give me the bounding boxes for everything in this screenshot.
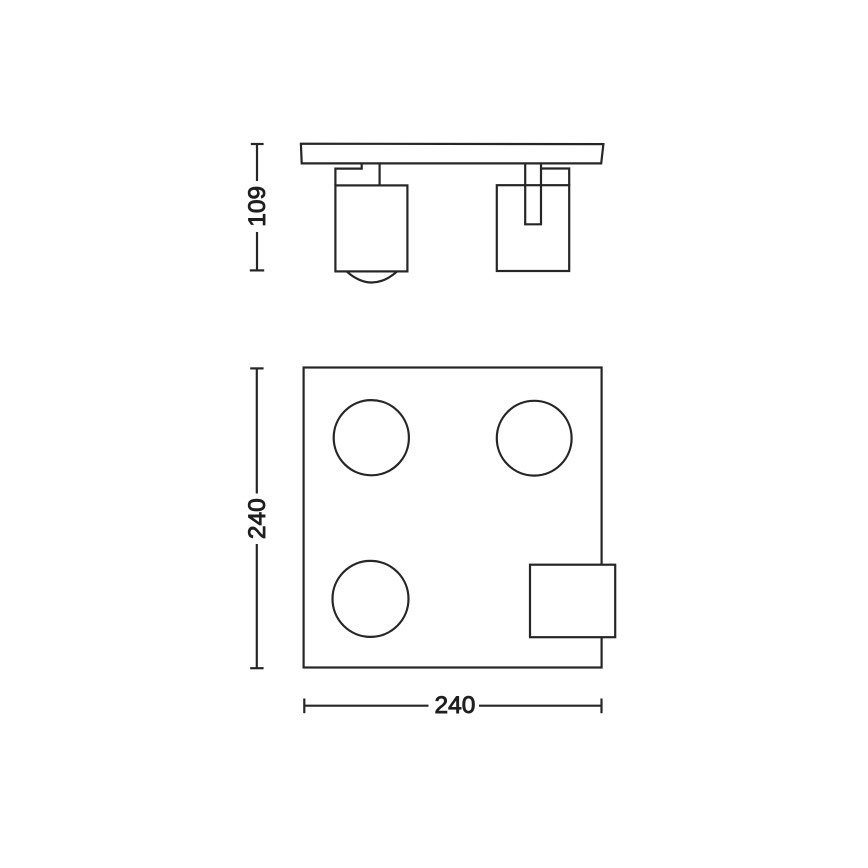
svg-text:240: 240 (435, 692, 476, 719)
svg-text:109: 109 (244, 186, 271, 227)
svg-text:240: 240 (244, 498, 271, 539)
